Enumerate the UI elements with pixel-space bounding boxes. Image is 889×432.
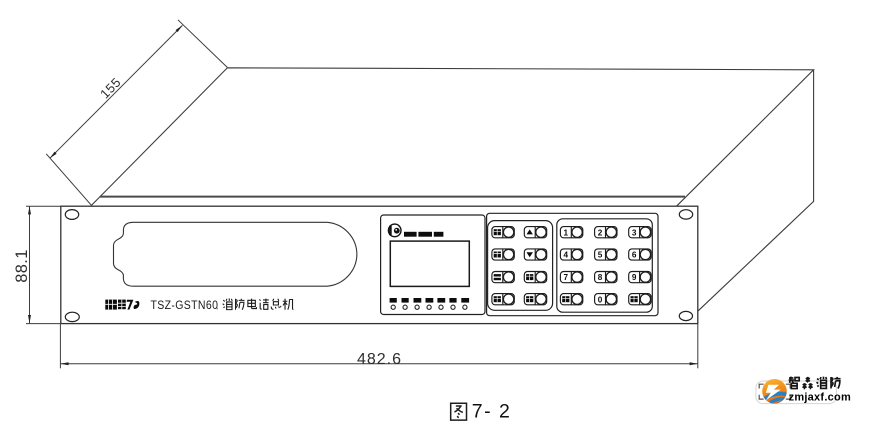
svg-text:0: 0: [598, 295, 603, 304]
svg-text:6: 6: [632, 251, 637, 260]
svg-text:88.1: 88.1: [13, 249, 31, 283]
svg-text:7- 2: 7- 2: [472, 401, 512, 423]
svg-text:5: 5: [598, 251, 603, 260]
svg-text:4: 4: [564, 251, 569, 260]
svg-text:7: 7: [564, 273, 569, 282]
svg-text:8: 8: [598, 273, 603, 282]
svg-text:1: 1: [564, 228, 569, 237]
svg-text:3: 3: [632, 228, 637, 237]
svg-text:9: 9: [632, 273, 637, 282]
svg-text:,: ,: [216, 302, 218, 311]
svg-text:zmjaxf.com: zmjaxf.com: [789, 392, 851, 404]
svg-text:482.6: 482.6: [357, 351, 402, 368]
svg-text:2: 2: [598, 228, 603, 237]
svg-text:TSZ-GSTN60: TSZ-GSTN60: [151, 299, 219, 312]
